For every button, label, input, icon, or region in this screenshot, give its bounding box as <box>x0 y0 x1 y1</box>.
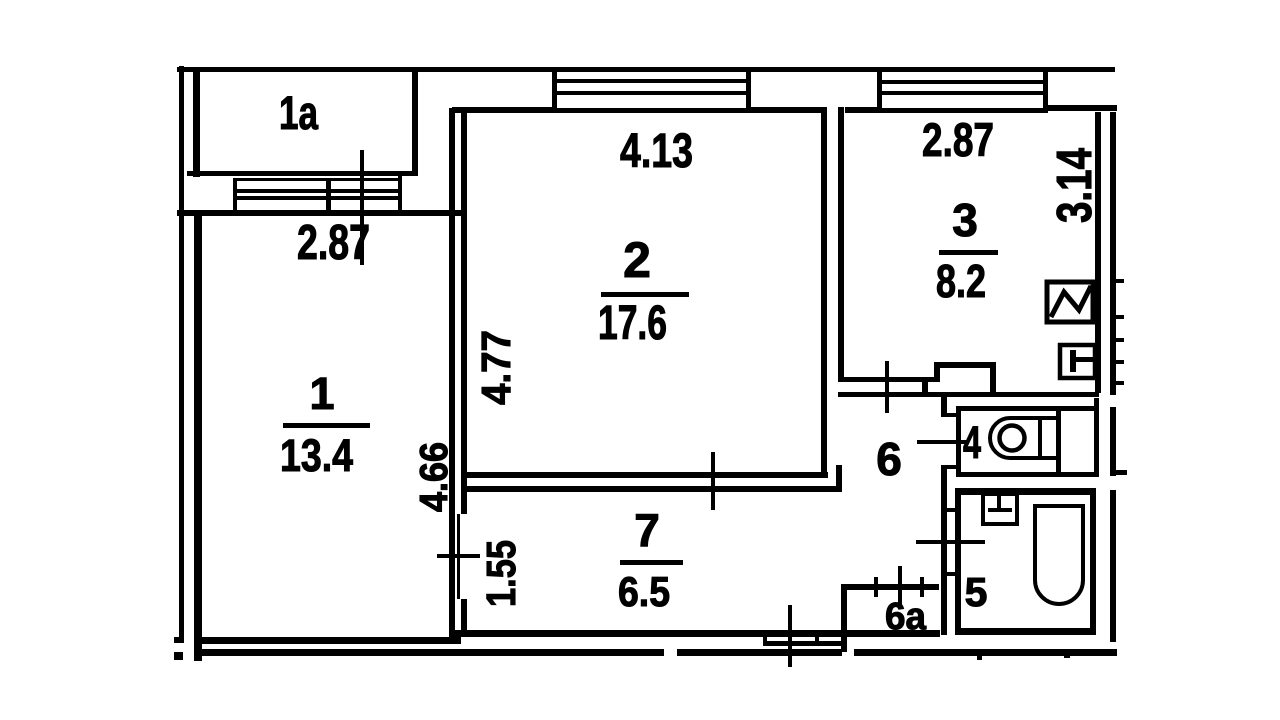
svg-text:8.2: 8.2 <box>936 255 986 307</box>
svg-text:4: 4 <box>963 417 981 468</box>
svg-text:7: 7 <box>634 504 660 556</box>
svg-text:1: 1 <box>309 368 334 419</box>
svg-text:6: 6 <box>876 433 902 485</box>
svg-text:5: 5 <box>965 569 988 615</box>
svg-text:3.14: 3.14 <box>1048 148 1102 223</box>
svg-text:17.6: 17.6 <box>598 297 667 350</box>
svg-text:4.77: 4.77 <box>473 330 519 405</box>
svg-text:1.55: 1.55 <box>478 540 524 607</box>
svg-text:4.66: 4.66 <box>413 442 456 512</box>
svg-text:1a: 1a <box>279 86 319 139</box>
svg-text:2.87: 2.87 <box>922 113 994 166</box>
svg-text:2.87: 2.87 <box>297 216 370 270</box>
svg-text:3: 3 <box>952 194 978 246</box>
svg-text:2: 2 <box>623 232 651 288</box>
svg-text:6.5: 6.5 <box>618 568 670 615</box>
svg-text:13.4: 13.4 <box>280 430 353 481</box>
svg-text:4.13: 4.13 <box>620 125 693 178</box>
